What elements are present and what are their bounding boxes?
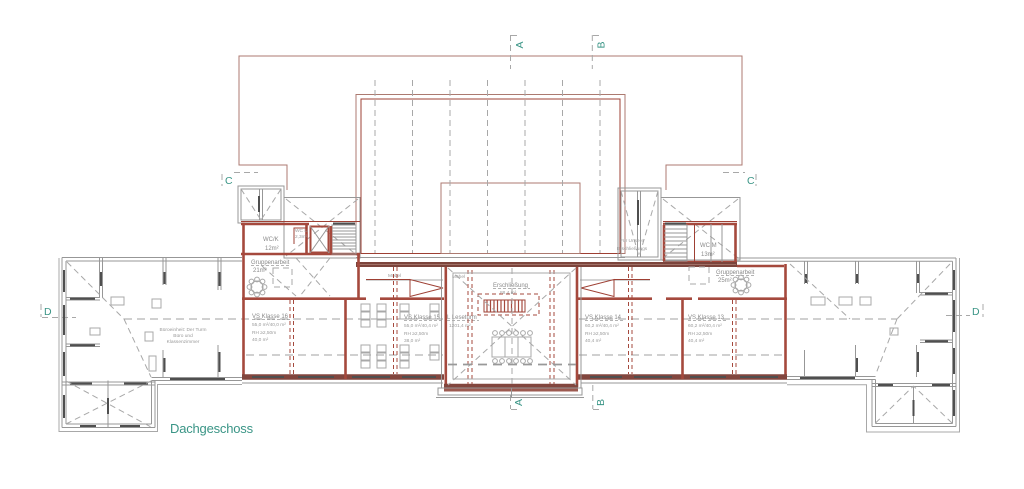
svg-text:25m²: 25m² xyxy=(718,278,732,284)
svg-text:A: A xyxy=(514,41,526,48)
svg-text:B: B xyxy=(596,41,608,48)
svg-text:13m²: 13m² xyxy=(701,252,715,258)
svg-text:C: C xyxy=(225,175,233,187)
svg-text:12m²: 12m² xyxy=(265,246,279,252)
svg-text:Klassenzimmer: Klassenzimmer xyxy=(167,339,200,345)
svg-text:WC M: WC M xyxy=(700,243,717,249)
svg-text:60,2 m²/40,4 m²: 60,2 m²/40,4 m² xyxy=(585,323,619,329)
svg-text:RH ≥2,50m: RH ≥2,50m xyxy=(252,330,276,336)
svg-text:C: C xyxy=(747,175,755,187)
svg-text:Büro und: Büro und xyxy=(173,333,193,339)
svg-text:WC Li: WC Li xyxy=(295,228,308,234)
svg-text:RH ≥2,50m: RH ≥2,50m xyxy=(404,331,428,337)
svg-text:21m²: 21m² xyxy=(253,268,267,274)
svg-text:WC/K: WC/K xyxy=(263,237,279,243)
svg-text:60,2 m²/40,4 m²: 60,2 m²/40,4 m² xyxy=(688,323,722,329)
svg-text:Möbel: Möbel xyxy=(388,273,401,279)
svg-text:40,4 m²: 40,4 m² xyxy=(585,338,602,344)
svg-text:RH ≥2,50m: RH ≥2,50m xyxy=(585,331,609,337)
svg-text:40,0 m²: 40,0 m² xyxy=(252,337,269,343)
svg-text:55,0 m²/40,4 m²: 55,0 m²/40,4 m² xyxy=(404,323,438,329)
svg-text:D: D xyxy=(972,306,980,318)
svg-text:2,3m²: 2,3m² xyxy=(295,234,308,240)
svg-text:A: A xyxy=(513,399,525,406)
svg-text:Für Unsere: Für Unsere xyxy=(620,238,644,244)
svg-text:40,4 m²: 40,4 m² xyxy=(688,338,705,344)
svg-text:88,4 m²: 88,4 m² xyxy=(500,290,517,296)
svg-text:Büroeinheit: Der Turm: Büroeinheit: Der Turm xyxy=(160,327,207,333)
svg-text:Dachgeschoss: Dachgeschoss xyxy=(170,421,254,436)
svg-text:Erschließungs: Erschließungs xyxy=(617,246,648,252)
svg-text:RH ≥2,50m: RH ≥2,50m xyxy=(688,331,712,337)
svg-text:B: B xyxy=(595,399,607,406)
svg-text:D: D xyxy=(44,306,52,318)
svg-text:38,0 m²: 38,0 m² xyxy=(404,338,421,344)
svg-text:55,0 m²/40,0 m²: 55,0 m²/40,0 m² xyxy=(252,322,286,328)
